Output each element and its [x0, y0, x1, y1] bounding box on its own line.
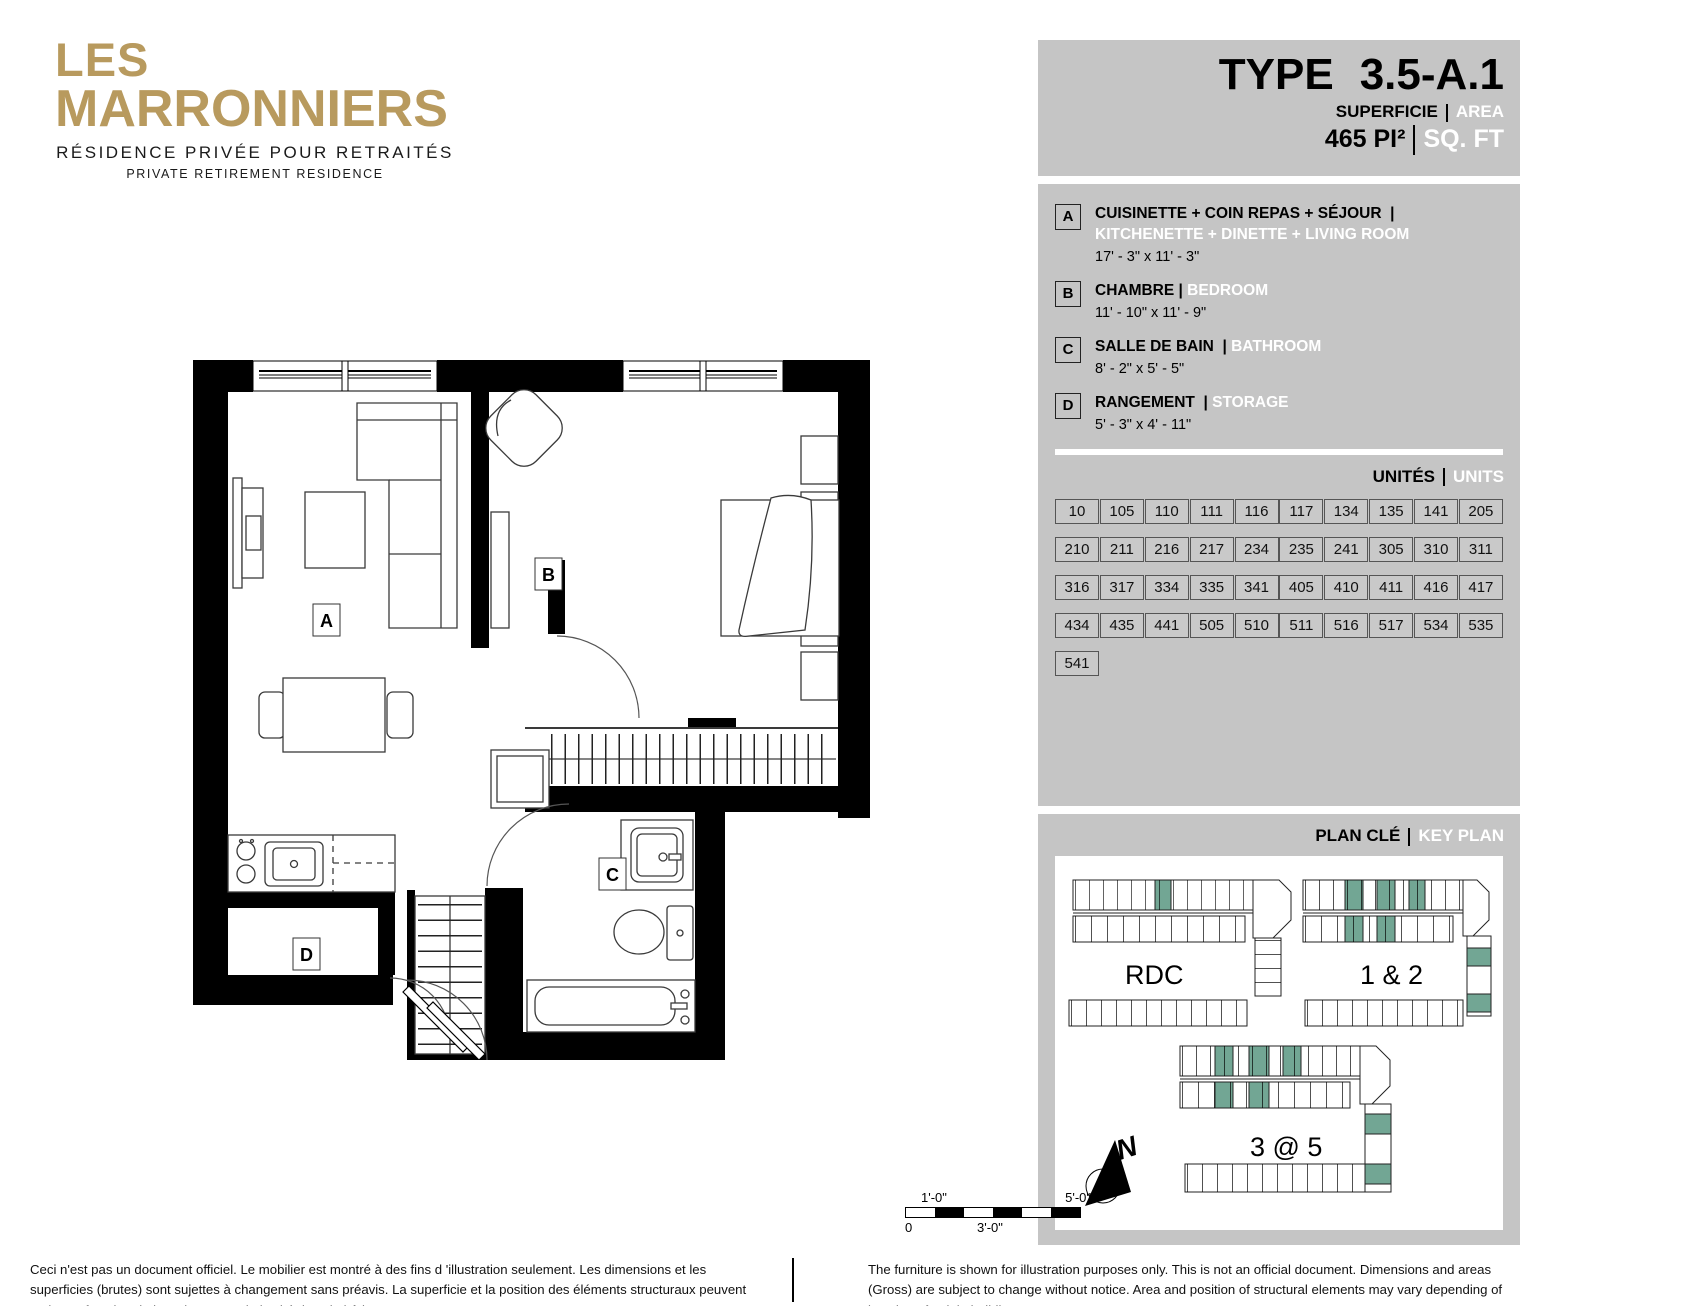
unit-number: 316	[1055, 575, 1099, 600]
brand-subtitle-en: PRIVATE RETIREMENT RESIDENCE	[55, 167, 455, 181]
room-label-c: C	[606, 865, 619, 885]
window	[253, 361, 437, 391]
legend-item-b: B CHAMBRE | BEDROOM 11' - 10" x 11' - 9"	[1055, 281, 1504, 321]
type-label: TYPE	[1219, 50, 1334, 99]
brand-logo: LES MARRONNIERS RÉSIDENCE PRIVÉE POUR RE…	[55, 38, 455, 181]
room-key-a: A	[1055, 204, 1081, 230]
unit-number: 135	[1369, 499, 1413, 524]
disclaimer-fr: Ceci n'est pas un document officiel. Le …	[30, 1260, 758, 1306]
unit-number: 116	[1235, 499, 1279, 524]
scale-label-1ft: 1'-0"	[921, 1190, 947, 1205]
sofa	[357, 403, 457, 628]
floor-label-1-2: 1 & 2	[1360, 960, 1423, 990]
unit-number: 134	[1324, 499, 1368, 524]
nightstand	[801, 652, 838, 700]
bathroom-door-arc	[487, 804, 569, 886]
unit-number: 416	[1414, 575, 1458, 600]
scale-label-3ft: 3'-0"	[977, 1220, 1003, 1235]
scale-bar: 1'-0" 5'-0" 0 3'-0"	[905, 1190, 1091, 1236]
hall-cabinet	[491, 750, 549, 808]
unit-number: 517	[1369, 613, 1413, 638]
divider-bar	[1446, 104, 1448, 122]
room-label-d: D	[300, 945, 313, 965]
unit-number: 511	[1279, 613, 1323, 638]
armchair	[479, 383, 570, 474]
unit-number: 111	[1190, 499, 1234, 524]
units-grid: 1010511011111611713413514120521021121621…	[1055, 499, 1503, 676]
unit-number: 516	[1324, 613, 1368, 638]
floor-label-rdc: RDC	[1125, 960, 1184, 990]
key-plan-svg: RDC	[1055, 856, 1503, 1230]
superficie-label: SUPERFICIE	[1336, 102, 1438, 121]
room-name-en: KITCHENETTE + DINETTE + LIVING ROOM	[1095, 226, 1409, 243]
unit-number: 211	[1100, 537, 1144, 562]
unit-number: 241	[1324, 537, 1368, 562]
unit-number: 305	[1369, 537, 1413, 562]
brand-subtitle-fr: RÉSIDENCE PRIVÉE POUR RETRAITÉS	[55, 143, 455, 163]
room-dims: 5' - 3" x 4' - 11"	[1095, 417, 1504, 433]
unit-number: 405	[1279, 575, 1323, 600]
room-legend: A CUISINETTE + COIN REPAS + SÉJOUR | KIT…	[1038, 184, 1520, 433]
unit-number: 417	[1459, 575, 1503, 600]
floorplan-sheet: LES MARRONNIERS RÉSIDENCE PRIVÉE POUR RE…	[0, 0, 1690, 1306]
sink-vanity	[621, 820, 693, 890]
bathtub	[527, 980, 695, 1032]
room-dims: 8' - 2" x 5' - 5"	[1095, 361, 1504, 377]
unit-number: 10	[1055, 499, 1099, 524]
keyplan-label-fr: PLAN CLÉ	[1315, 826, 1400, 845]
unit-number: 216	[1145, 537, 1189, 562]
room-name-en: STORAGE	[1212, 394, 1288, 411]
divider-bar	[1413, 125, 1415, 155]
room-name-fr: RANGEMENT | STORAGE	[1095, 393, 1504, 414]
unit-number: 235	[1279, 537, 1323, 562]
room-dims: 11' - 10" x 11' - 9"	[1095, 305, 1504, 321]
type-value: 3.5-A.1	[1360, 50, 1504, 99]
legend-item-a: A CUISINETTE + COIN REPAS + SÉJOUR | KIT…	[1055, 204, 1504, 265]
unit-number: 410	[1324, 575, 1368, 600]
scale-label-5ft: 5'-0"	[1065, 1190, 1091, 1205]
brand-line1: LES	[55, 38, 455, 83]
unit-number: 210	[1055, 537, 1099, 562]
room-key-b: B	[1055, 281, 1081, 307]
unit-number: 441	[1145, 613, 1189, 638]
floor-plan: A B C D	[193, 330, 870, 1065]
legend-item-d: D RANGEMENT | STORAGE 5' - 3" x 4' - 11"	[1055, 393, 1504, 433]
key-plan-title: PLAN CLÉKEY PLAN	[1038, 814, 1520, 846]
unit-number: 110	[1145, 499, 1189, 524]
north-arrow-icon: N	[1085, 1130, 1142, 1206]
area-value: 465 PI²	[1325, 125, 1406, 153]
key-plan-panel: PLAN CLÉKEY PLAN RDC	[1038, 814, 1520, 1245]
dresser	[491, 512, 509, 628]
divider-bar	[1443, 468, 1445, 486]
room-dims: 17' - 3" x 11' - 3"	[1095, 249, 1504, 265]
tv-unit	[233, 478, 263, 588]
units-title: UNITÉSUNITS	[1038, 455, 1520, 487]
unit-number: 105	[1100, 499, 1144, 524]
unit-number: 217	[1190, 537, 1234, 562]
unit-number: 341	[1235, 575, 1279, 600]
unit-number: 117	[1279, 499, 1323, 524]
key-plan-drawing: RDC	[1055, 856, 1503, 1230]
disclaimer-en: The furniture is shown for illustration …	[868, 1260, 1516, 1306]
bed	[721, 436, 839, 700]
room-name-fr: CUISINETTE + COIN REPAS + SÉJOUR | KITCH…	[1095, 204, 1504, 246]
room-name-fr: SALLE DE BAIN | BATHROOM	[1095, 337, 1504, 358]
toilet	[614, 906, 693, 960]
room-key-d: D	[1055, 393, 1081, 419]
unit-number: 205	[1459, 499, 1503, 524]
room-label-b: B	[542, 565, 555, 585]
bedroom-door-arc	[557, 636, 639, 718]
unit-type-title: TYPE3.5-A.1	[1219, 50, 1504, 100]
units-label-en: UNITS	[1453, 467, 1504, 486]
sqft-label: SQ. FT	[1423, 125, 1504, 153]
area-value-row: 465 PI²SQ. FT	[1219, 125, 1504, 155]
brand-line2: MARRONNIERS	[55, 83, 455, 135]
window	[623, 361, 783, 391]
type-header-panel: TYPE3.5-A.1 SUPERFICIEAREA 465 PI²SQ. FT	[1038, 40, 1520, 176]
scale-bar-segments	[905, 1207, 1081, 1218]
unit-number: 334	[1145, 575, 1189, 600]
unit-number: 505	[1190, 613, 1234, 638]
coffee-table	[305, 492, 365, 568]
unit-number: 411	[1369, 575, 1413, 600]
unit-number: 534	[1414, 613, 1458, 638]
legend-units-panel: A CUISINETTE + COIN REPAS + SÉJOUR | KIT…	[1038, 184, 1520, 806]
legend-item-c: C SALLE DE BAIN | BATHROOM 8' - 2" x 5' …	[1055, 337, 1504, 377]
area-label: AREA	[1456, 102, 1504, 121]
room-name-fr: CHAMBRE | BEDROOM	[1095, 281, 1504, 302]
unit-number: 310	[1414, 537, 1458, 562]
unit-number: 541	[1055, 651, 1099, 676]
dining-table	[259, 678, 413, 752]
unit-number: 311	[1459, 537, 1503, 562]
building-1-2	[1303, 880, 1491, 1026]
room-name-en: BATHROOM	[1231, 338, 1321, 355]
unit-number: 435	[1100, 613, 1144, 638]
room-name-en: BEDROOM	[1187, 282, 1268, 299]
unit-number: 317	[1100, 575, 1144, 600]
superficie-row: SUPERFICIEAREA	[1219, 102, 1504, 122]
building-rdc	[1069, 880, 1291, 1026]
room-label-a: A	[320, 611, 333, 631]
floor-plan-svg: A B C D	[193, 330, 870, 1060]
unit-number: 141	[1414, 499, 1458, 524]
unit-number: 535	[1459, 613, 1503, 638]
keyplan-label-en: KEY PLAN	[1418, 826, 1504, 845]
room-key-c: C	[1055, 337, 1081, 363]
unit-number: 434	[1055, 613, 1099, 638]
unit-number: 510	[1235, 613, 1279, 638]
floor-label-3-5: 3 @ 5	[1250, 1132, 1322, 1162]
unit-number: 234	[1235, 537, 1279, 562]
building-3-5	[1180, 1046, 1391, 1192]
nightstand	[801, 436, 838, 484]
divider-bar	[1408, 828, 1410, 846]
scale-label-0: 0	[905, 1220, 912, 1235]
units-label-fr: UNITÉS	[1373, 467, 1435, 486]
kitchen-counter	[228, 835, 395, 892]
footer-divider	[792, 1258, 794, 1302]
closet-rod	[525, 728, 838, 759]
unit-number: 335	[1190, 575, 1234, 600]
